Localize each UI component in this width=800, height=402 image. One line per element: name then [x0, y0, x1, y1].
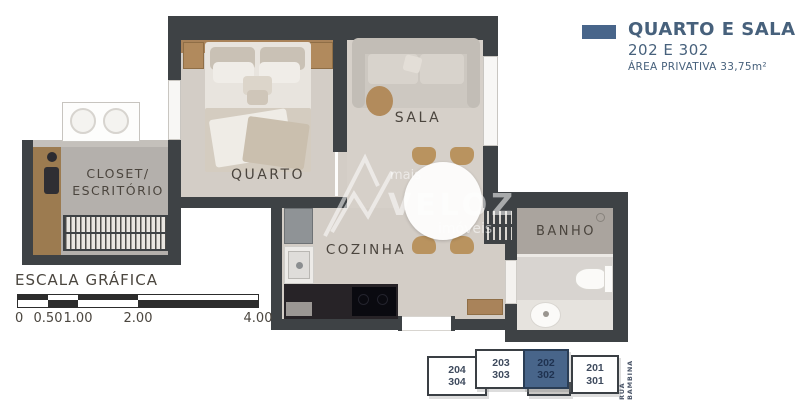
laundry-sink-icon: [103, 108, 129, 134]
quarto-label: QUARTO: [231, 167, 305, 183]
banho-label: BANHO: [536, 224, 596, 239]
legend-units: 202 E 302: [628, 41, 709, 59]
banho-bottom-wall: [505, 330, 628, 342]
banho-door-opening: [505, 260, 517, 304]
cozinha-bottom-wall: [271, 319, 402, 330]
closet-label-line1: CLOSET/: [86, 166, 149, 181]
scale-seg: [138, 300, 258, 307]
toilet-tank: [604, 265, 613, 293]
desk-lamp-icon: [47, 152, 57, 162]
watermark-brand: VELOZ: [388, 188, 517, 223]
entry-door-opening: [400, 316, 455, 331]
watermark-prefix: mais: [390, 168, 421, 183]
shower-glass-divider: [517, 254, 613, 257]
unit-number: 303: [492, 369, 510, 381]
exterior-wall-top: [168, 16, 498, 40]
washer-icon: [70, 108, 96, 134]
key-plan-unit-201-301: 201 301: [571, 355, 619, 394]
toilet: [575, 268, 606, 290]
sofa-armrest-right: [467, 38, 480, 108]
scale-seg: [48, 300, 78, 307]
desk: [33, 147, 61, 255]
sofa-cushion-right: [420, 54, 464, 84]
bathroom-faucet-icon: [543, 311, 549, 317]
desk-chair: [44, 167, 59, 194]
entry-door-frame-left: [398, 316, 402, 331]
fridge: [284, 208, 313, 244]
shower-drain-icon: [596, 213, 605, 222]
corridor-bottom-wall: [455, 319, 507, 330]
closet-bottom-wall: [22, 255, 168, 265]
quarto-window: [168, 80, 181, 140]
banho-right-wall: [613, 192, 628, 342]
pouf: [366, 86, 393, 116]
sala-label: SALA: [395, 110, 441, 126]
dining-chair-top-right: [450, 147, 474, 165]
nightstand-left: [183, 42, 204, 69]
quarto-left-wall-upper: [168, 40, 181, 80]
quarto-bottom-wall: [168, 197, 347, 208]
unit-number: 304: [448, 376, 466, 388]
watermark-suffix: imóveis: [438, 221, 492, 237]
unit-number: 301: [586, 375, 604, 387]
scale-bar: ESCALA GRÁFICA 0 0.50 1.00 2.00 4.00: [15, 271, 285, 326]
sofa-armrest-left: [352, 38, 365, 108]
wardrobe-rail-bottom: [65, 234, 166, 249]
kitchen-faucet-icon: [296, 262, 303, 269]
bed-cushion-small: [247, 90, 268, 105]
key-plan-unit-203-303: 203 303: [475, 349, 527, 389]
closet-label-line2: ESCRITÓRIO: [72, 183, 164, 198]
scale-seg: [78, 300, 138, 307]
floor-plan-page: QUARTO SALA COZINHA BANHO CLOSET/ ESCRIT…: [0, 0, 800, 402]
bed-blanket-throw: [242, 116, 310, 170]
cozinha-label: COZINHA: [326, 242, 406, 258]
scale-label-050: 0.50: [34, 311, 63, 326]
wardrobe-rail-top: [65, 217, 166, 232]
scale-label-400: 4.00: [244, 311, 273, 326]
scale-label-200: 2.00: [124, 311, 153, 326]
scale-seg: [18, 300, 48, 307]
key-plan: 204 304 203 303 202 302 201 301 RUA BAMB…: [425, 346, 630, 402]
unit-number: 203: [492, 357, 510, 369]
key-plan-unit-202-302-highlighted: 202 302: [523, 349, 569, 389]
legend-swatch: [582, 25, 616, 39]
sala-right-wall-upper: [483, 16, 498, 56]
nightstand-right: [310, 42, 333, 69]
scale-bar-title: ESCALA GRÁFICA: [15, 271, 285, 289]
legend-title: QUARTO E SALA: [628, 19, 796, 40]
scale-label-0: 0: [15, 311, 23, 326]
cooktop-burner-left: [358, 294, 369, 305]
street-label: RUA BAMBINA: [618, 346, 634, 400]
unit-number: 302: [537, 369, 555, 381]
unit-number: 204: [448, 364, 466, 376]
dining-chair-bottom-right: [450, 236, 474, 254]
entry-bench: [467, 299, 503, 315]
unit-number: 202: [537, 357, 555, 369]
legend-area: ÁREA PRIVATIVA 33,75m²: [628, 61, 767, 73]
sofa-back: [352, 38, 480, 54]
sala-window: [483, 56, 498, 146]
dishwasher: [286, 302, 312, 316]
closet-left-wall: [22, 140, 33, 265]
cooktop-burner-right: [377, 294, 388, 305]
unit-number: 201: [586, 362, 604, 374]
quarto-sala-divider-wall: [333, 40, 347, 152]
scale-label-100: 1.00: [64, 311, 93, 326]
scale-bar-graphic: 0 0.50 1.00 2.00 4.00: [17, 294, 259, 308]
